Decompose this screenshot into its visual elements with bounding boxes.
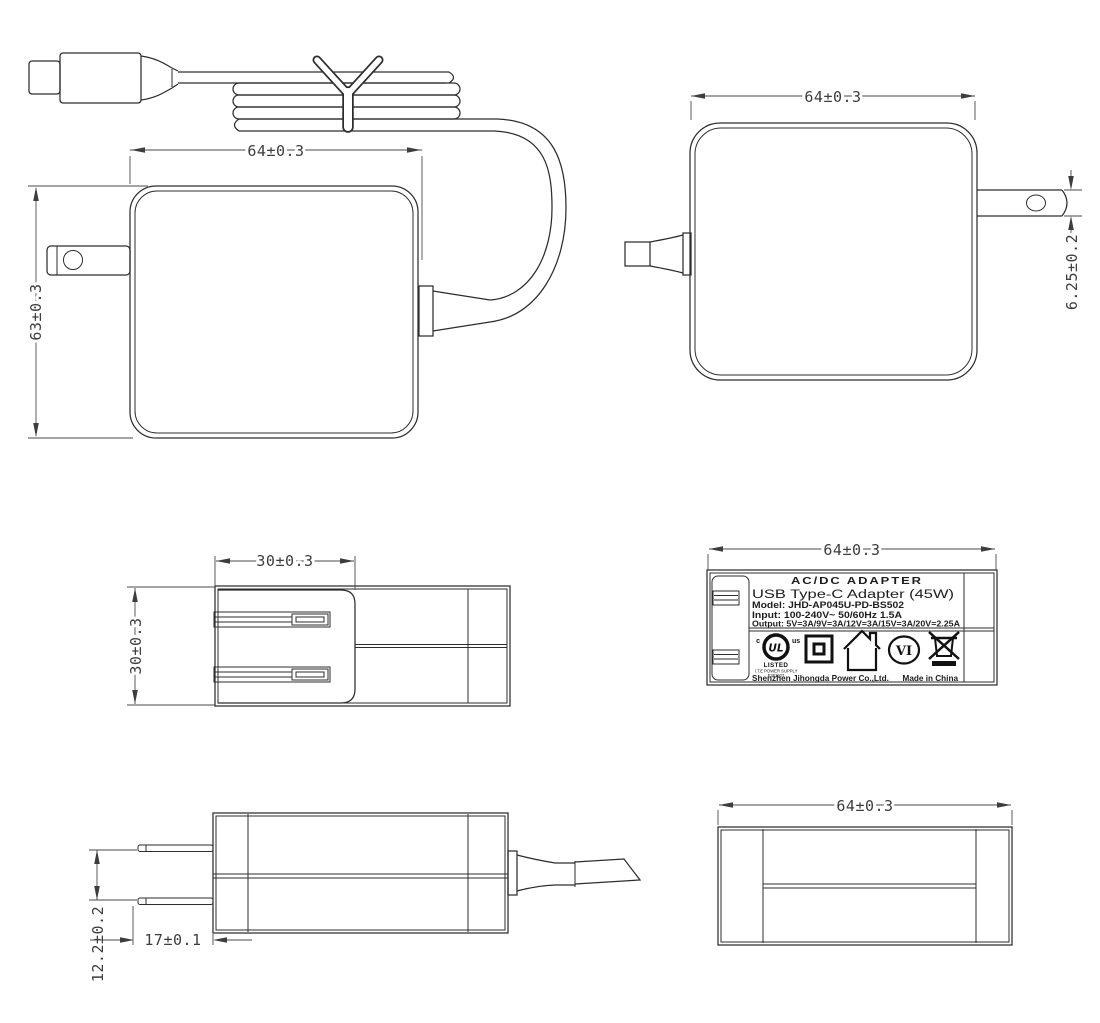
ul-listed-icon: UL c us LISTED I.T.E POWER SUPPLY E36192… bbox=[755, 635, 801, 678]
label-model: Model: JHD-AP045U-PD-BS502 bbox=[752, 600, 904, 610]
back-pin-dim: 6.25±0.2 bbox=[1063, 170, 1082, 310]
top-body-inner bbox=[218, 589, 507, 703]
front-width-dim: 64±0.3 bbox=[130, 142, 422, 260]
back-width-text: 64±0.3 bbox=[804, 88, 861, 106]
front-plug-prong bbox=[47, 246, 130, 275]
side-prong-lower bbox=[138, 898, 213, 905]
side-body-inner bbox=[216, 816, 505, 930]
label-origin: Made in China bbox=[903, 674, 959, 683]
top-plug-width-dim: 30±0.3 bbox=[215, 552, 355, 590]
cable-cut-end bbox=[575, 859, 640, 884]
top-depth-dim: 30±0.3 bbox=[127, 587, 215, 705]
indoor-use-house-icon bbox=[844, 631, 880, 670]
bottom-width-text: 64±0.3 bbox=[836, 797, 893, 815]
usb-c-taper bbox=[141, 56, 178, 71]
front-strain-relief bbox=[419, 286, 490, 336]
side-pin-pitch-text: 12.2±0.2 bbox=[89, 906, 107, 982]
side-pin-length-dim: 17±0.1 bbox=[90, 906, 252, 949]
side-body-outer bbox=[213, 813, 508, 933]
side-view: 12.2±0.2 17±0.1 bbox=[89, 813, 640, 982]
cable-tie bbox=[317, 60, 379, 127]
front-view: 64±0.3 63±0.3 bbox=[27, 53, 566, 438]
top-body-outer bbox=[215, 586, 510, 706]
back-view: 64±0.3 6.25±0.2 bbox=[625, 88, 1082, 380]
top-plug-module bbox=[218, 590, 355, 703]
back-width-dim: 64±0.3 bbox=[691, 88, 975, 120]
usb-c-connector bbox=[29, 53, 178, 103]
drawing-sheet: 64±0.3 63±0.3 bbox=[0, 0, 1100, 1023]
adapter-drawing-svg: 64±0.3 63±0.3 bbox=[0, 0, 1100, 1023]
ul-letters: UL bbox=[768, 643, 783, 655]
cable-loop-outer bbox=[490, 119, 566, 322]
coiled-cable bbox=[178, 72, 566, 322]
usb-c-body bbox=[60, 53, 141, 103]
cable-loop-inner bbox=[490, 131, 552, 300]
bottom-view: 64±0.3 bbox=[718, 797, 1012, 945]
usb-c-tip bbox=[29, 61, 60, 94]
efficiency-mark-text: VI bbox=[895, 644, 912, 659]
front-body bbox=[130, 186, 418, 438]
side-cable-exit bbox=[508, 851, 640, 895]
side-prong-upper bbox=[138, 845, 213, 852]
front-height-text: 63±0.3 bbox=[27, 283, 45, 340]
label-view: AC/DC ADAPTER USB Type-C Adapter (45W) M… bbox=[707, 541, 997, 685]
side-pin-length-text: 17±0.1 bbox=[144, 931, 201, 949]
bottom-width-dim: 64±0.3 bbox=[718, 797, 1012, 825]
ul-line2: E361927 bbox=[768, 673, 785, 678]
back-cable-exit bbox=[625, 233, 691, 275]
top-prong-upper bbox=[214, 612, 330, 627]
prong-hole bbox=[1027, 195, 1046, 211]
ul-us: us bbox=[792, 638, 800, 645]
back-plug-prong bbox=[977, 190, 1067, 216]
weee-bin-icon bbox=[929, 632, 959, 666]
top-plug-width-text: 30±0.3 bbox=[256, 552, 313, 570]
ul-c: c bbox=[756, 638, 760, 645]
back-body bbox=[690, 123, 977, 380]
efficiency-vi-icon: VI bbox=[889, 637, 919, 664]
bottom-body-inner bbox=[721, 830, 1009, 942]
top-prong-lower bbox=[214, 667, 330, 682]
label-output: Output: 5V=3A/9V=3A/12V=3A/15V=3A/20V=2.… bbox=[752, 620, 960, 629]
bottom-body-outer bbox=[718, 827, 1012, 945]
front-width-text: 64±0.3 bbox=[247, 142, 304, 160]
label-title: AC/DC ADAPTER bbox=[791, 576, 923, 587]
back-pin-text: 6.25±0.2 bbox=[1063, 234, 1081, 310]
prong-hole bbox=[64, 251, 83, 270]
label-width-dim: 64±0.3 bbox=[708, 541, 996, 570]
label-width-text: 64±0.3 bbox=[823, 541, 880, 559]
side-pin-pitch-dim: 12.2±0.2 bbox=[89, 850, 137, 982]
label-prong-slot-lower bbox=[713, 650, 739, 664]
top-view: 30±0.3 30±0.3 bbox=[127, 552, 510, 706]
label-input: Input: 100-240V~ 50/60Hz 1.5A bbox=[752, 610, 903, 620]
label-prong-slot-upper bbox=[713, 591, 739, 605]
top-depth-text: 30±0.3 bbox=[127, 617, 145, 674]
class2-insulation-icon bbox=[806, 636, 832, 662]
